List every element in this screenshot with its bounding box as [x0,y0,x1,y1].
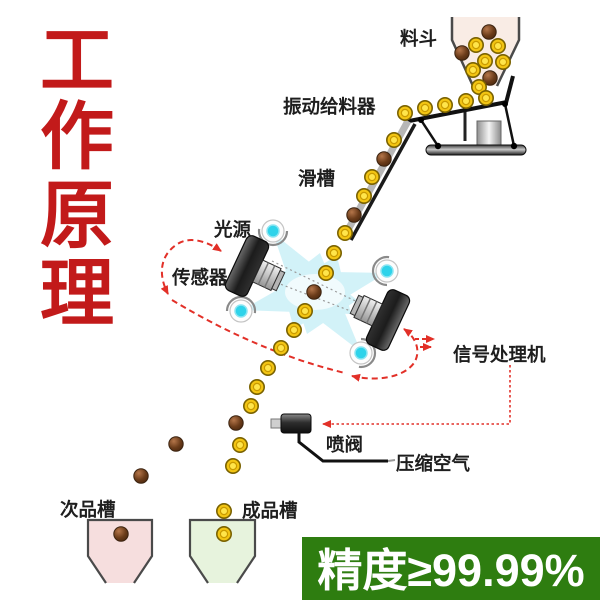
ball-yellow [496,55,510,69]
accuracy-badge-text: 精度≥99.99% [317,545,584,596]
light-source-right [373,257,401,285]
color-sorter-working-principle: 工 作 原 理 [0,0,600,600]
feeder-label: 振动给料器 [283,96,376,117]
title-char-1: 工 [40,21,114,103]
light-source-left [227,297,255,325]
ball-yellow [298,304,312,318]
ball-yellow [398,106,412,120]
ball-yellow [319,266,333,280]
hopper-label: 料斗 [400,28,437,49]
ball-yellow [244,399,258,413]
ball-brown [307,285,321,299]
ball-yellow [261,361,275,375]
ball-yellow [418,101,432,115]
ball-yellow [226,459,240,473]
sorter-diagram: 工 作 原 理 [0,0,600,600]
ball-yellow [338,226,352,240]
light-source-label: 光源 [213,219,252,240]
ball-yellow [327,246,341,260]
compressed-air-label: 压缩空气 [396,453,471,474]
page-title: 工 作 原 理 [40,21,114,336]
accept-trough-label: 成品槽 [242,500,298,521]
title-char-3: 原 [40,176,114,258]
signal-to-valve-line [323,365,510,424]
ball-brown [229,416,243,430]
ball-yellow [387,133,401,147]
ball-brown [482,25,496,39]
ball-brown [455,46,469,60]
ball-brown [114,527,128,541]
ball-brown [134,469,148,483]
reject-trough-label: 次品槽 [60,499,116,520]
signal-processor-label: 信号处理机 [453,344,546,365]
ball-yellow [217,527,231,541]
ball-yellow [274,341,288,355]
ball-yellow [250,380,264,394]
title-char-2: 作 [40,97,114,179]
ball-yellow [478,54,492,68]
ball-yellow [287,323,301,337]
ball-yellow [466,63,480,77]
ball-yellow [438,98,452,112]
ball-brown [169,437,183,451]
ball-yellow [491,39,505,53]
spray-valve-label: 喷阀 [326,434,363,455]
sensor-label: 传感器 [171,267,228,288]
ball-yellow [217,504,231,518]
ball-yellow [459,94,473,108]
chute-label: 滑槽 [298,168,336,189]
ball-yellow [479,91,493,105]
ball-brown [347,208,361,222]
ball-yellow [365,170,379,184]
accuracy-badge: 精度≥99.99% [302,537,600,600]
ball-brown [377,152,391,166]
title-char-4: 理 [40,254,114,336]
ball-yellow [469,38,483,52]
ball-yellow [233,438,247,452]
ball-yellow [357,189,371,203]
